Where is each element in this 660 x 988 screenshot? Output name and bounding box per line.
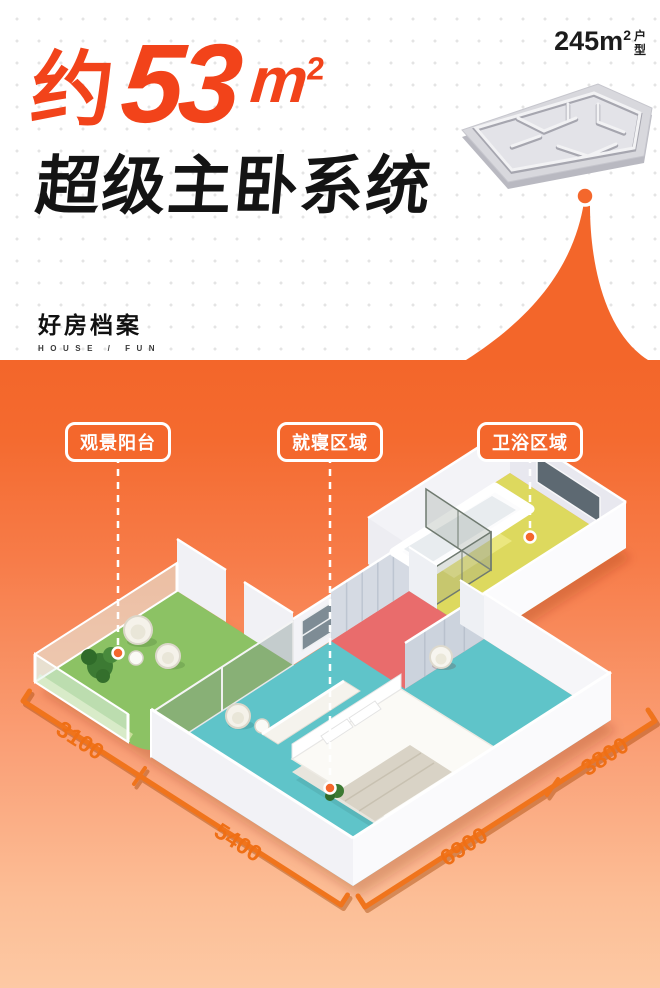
floorplan-poster: 约 53 m2 超级主卧系统 245m2 户 型 好房档案 HOUSE / FU… xyxy=(0,0,660,988)
headline-prefix: 约 xyxy=(28,52,117,130)
apartment-type-badge: 245m2 户 型 xyxy=(554,26,646,58)
mini-floorplan xyxy=(462,84,652,189)
brand-logo-en: HOUSE / FUN xyxy=(38,344,161,353)
bottom-section: 3100 5400 6900 3800 观景阳台 就寝区域 卫浴区域 xyxy=(0,360,660,988)
label-bathroom: 卫浴区域 xyxy=(477,422,583,462)
brand-logo: 好房档案 HOUSE / FUN xyxy=(38,306,161,353)
brand-logo-cn: 好房档案 xyxy=(38,306,161,340)
headline-area-number: 53 xyxy=(118,38,241,130)
headline: 约 53 m2 xyxy=(28,38,325,130)
headline-unit-base: m xyxy=(248,44,309,116)
headline-unit-sup: 2 xyxy=(305,50,324,86)
badge-area: 245m2 xyxy=(554,26,631,57)
headline-unit: m2 xyxy=(249,55,324,106)
label-balcony: 观景阳台 xyxy=(65,422,171,462)
top-section: 约 53 m2 超级主卧系统 245m2 户 型 好房档案 HOUSE / FU… xyxy=(0,0,660,360)
balcony-side-table xyxy=(129,651,143,665)
badge-suffix: 户 型 xyxy=(634,30,646,58)
callout-marker-dot xyxy=(576,187,594,205)
label-sleeping: 就寝区域 xyxy=(277,422,383,462)
callout-peak xyxy=(466,202,648,360)
poster-title: 超级主卧系统 xyxy=(33,150,435,224)
